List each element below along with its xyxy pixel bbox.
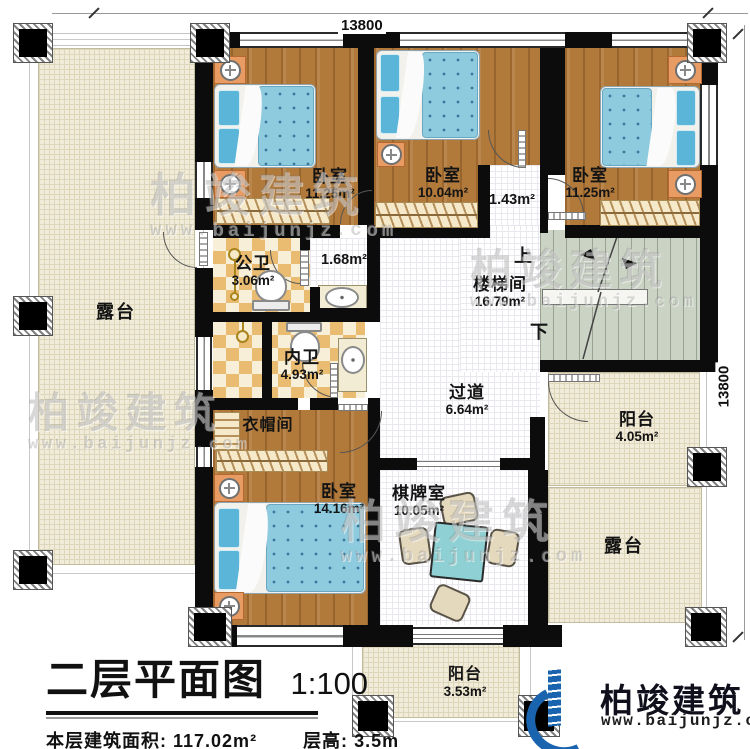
chair bbox=[485, 528, 521, 569]
mahjong-table bbox=[429, 521, 489, 582]
lamp-icon bbox=[675, 174, 696, 195]
title-underline-shadow bbox=[46, 717, 318, 719]
wall bbox=[565, 225, 700, 238]
bed-pillow bbox=[218, 508, 240, 548]
room-label-balcony-bottom: 阳台 3.53m² bbox=[423, 666, 507, 699]
wall bbox=[195, 198, 213, 230]
lamp-icon bbox=[220, 174, 241, 195]
door-leaf bbox=[338, 404, 368, 411]
shower-head-icon bbox=[236, 330, 249, 343]
wall bbox=[213, 312, 367, 322]
nightstand bbox=[214, 170, 246, 198]
title-block: 二层平面图 1:100 本层建筑面积:117.02m²层高:3.5m bbox=[46, 646, 405, 749]
column bbox=[685, 607, 727, 647]
bed-mattress bbox=[266, 504, 364, 592]
wall bbox=[530, 417, 545, 470]
room-label-bedroom-tr: 卧室 11.25m² bbox=[545, 166, 635, 200]
window bbox=[700, 85, 718, 165]
bed-pillow bbox=[380, 54, 400, 92]
bed-pillow bbox=[676, 130, 696, 166]
room-label-stairwell: 楼梯间 16.79m² bbox=[455, 275, 545, 309]
parapet-line bbox=[706, 372, 707, 640]
scale-label: 1:100 bbox=[290, 666, 368, 702]
nightstand bbox=[668, 170, 702, 198]
room-label-chess-room: 棋牌室 10.05m² bbox=[375, 484, 463, 518]
dimension-line-top bbox=[52, 13, 748, 14]
wall bbox=[380, 458, 417, 470]
column bbox=[188, 607, 232, 647]
room-label-cloakroom: 衣帽间 bbox=[226, 417, 310, 435]
room-label-bath-private: 内卫 4.93m² bbox=[262, 348, 342, 382]
door-leaf bbox=[199, 232, 208, 266]
wall bbox=[503, 625, 562, 647]
stair-up-label: 上 bbox=[514, 242, 532, 268]
bed-mattress bbox=[602, 88, 652, 166]
wall bbox=[195, 467, 213, 625]
dimension-top-label: 13800 bbox=[338, 17, 386, 34]
bed-pillow bbox=[676, 90, 696, 126]
door-leaf bbox=[548, 212, 586, 220]
floor-plan: 13800 13800 bbox=[0, 0, 750, 749]
dimension-line-right bbox=[744, 25, 745, 640]
nightstand bbox=[214, 474, 244, 502]
wall bbox=[528, 470, 548, 625]
lamp-icon bbox=[219, 478, 240, 499]
toilet-tank bbox=[252, 300, 290, 311]
wall bbox=[540, 360, 708, 372]
column bbox=[190, 23, 230, 63]
nightstand bbox=[377, 142, 405, 167]
window bbox=[237, 625, 343, 647]
floor-area-value: 117.02m² bbox=[173, 731, 257, 749]
wall bbox=[300, 238, 310, 250]
stair-break-line bbox=[540, 225, 710, 365]
parapet-line bbox=[52, 33, 195, 34]
wall bbox=[700, 165, 718, 372]
room-label-bath-public: 公卫 3.06m² bbox=[214, 254, 292, 288]
wall bbox=[195, 268, 213, 337]
room-label-terrace-left: 露台 bbox=[80, 302, 152, 322]
column bbox=[687, 447, 727, 487]
room-label-bedroom-tl: 卧室 11.25m² bbox=[285, 167, 375, 201]
column bbox=[687, 23, 727, 63]
sink bbox=[341, 346, 365, 374]
door-leaf bbox=[518, 130, 526, 168]
dimension-tick bbox=[732, 28, 743, 39]
floor-area-label: 本层建筑面积: bbox=[46, 731, 167, 749]
wall bbox=[195, 390, 213, 447]
opening-threshold bbox=[417, 461, 500, 467]
door-leaf bbox=[548, 374, 600, 382]
title-underline bbox=[46, 711, 318, 715]
window bbox=[400, 32, 565, 48]
logo-building-icon bbox=[561, 655, 597, 732]
room-label-terrace-right: 露台 bbox=[588, 536, 660, 556]
wall bbox=[343, 625, 413, 647]
stair-down-label: 下 bbox=[530, 318, 548, 344]
window bbox=[196, 447, 212, 467]
dimension-tick bbox=[732, 631, 743, 642]
column bbox=[13, 550, 53, 590]
wall bbox=[213, 225, 340, 238]
chair bbox=[398, 526, 433, 566]
wardrobe bbox=[216, 450, 328, 472]
wall bbox=[565, 32, 612, 48]
window bbox=[195, 162, 213, 198]
room-label-corridor: 过道 6.64m² bbox=[425, 383, 509, 417]
wardrobe bbox=[600, 200, 700, 226]
page-title: 二层平面图 bbox=[46, 646, 266, 707]
parapet-line bbox=[52, 45, 195, 46]
room-label-balcony-right: 阳台 4.05m² bbox=[595, 410, 679, 444]
column bbox=[13, 23, 53, 63]
wall bbox=[540, 48, 565, 175]
room-label-hall-small: 1.43m² bbox=[472, 192, 552, 208]
room-label-hall-bath: 1.68m² bbox=[306, 252, 382, 268]
wall bbox=[343, 32, 400, 48]
floor-height-label: 层高: bbox=[303, 731, 348, 749]
bed-mattress bbox=[258, 86, 314, 166]
bed-mattress bbox=[422, 52, 478, 138]
window bbox=[240, 32, 343, 48]
room-label-bedroom-b: 卧室 14.16m² bbox=[295, 482, 383, 516]
floor-info: 本层建筑面积:117.02m²层高:3.5m bbox=[46, 727, 405, 749]
column bbox=[13, 296, 53, 336]
lamp-icon bbox=[381, 144, 402, 165]
shower-drain-icon bbox=[230, 292, 239, 301]
wall bbox=[310, 398, 338, 410]
wall bbox=[213, 398, 298, 410]
floor-height-value: 3.5m bbox=[354, 731, 399, 749]
sink bbox=[325, 287, 359, 308]
company-logo: 柏竣建筑 www.baijunjz.com bbox=[520, 652, 748, 746]
wardrobe bbox=[375, 202, 478, 228]
window bbox=[196, 337, 212, 390]
dimension-right-label: 13800 bbox=[715, 363, 732, 411]
bed-pillow bbox=[218, 90, 240, 126]
logo-url: www.baijunjz.com bbox=[601, 712, 750, 730]
wardrobe bbox=[216, 198, 330, 224]
